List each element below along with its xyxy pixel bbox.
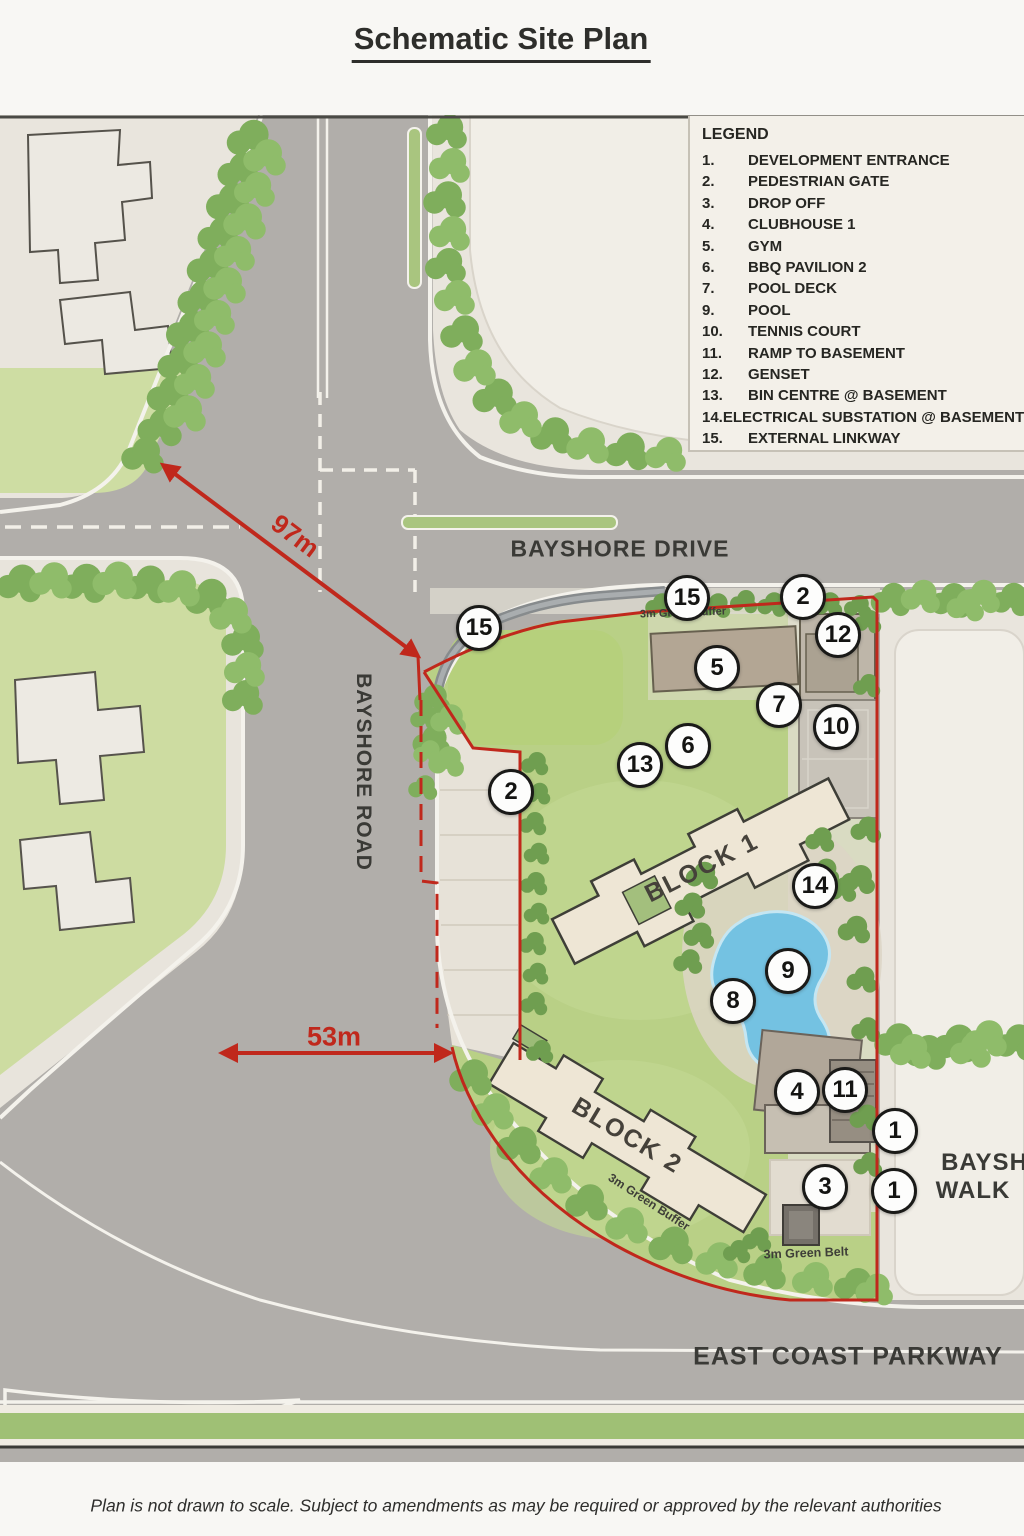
map-marker-4: 4 [774, 1069, 820, 1115]
map-marker-14: 14 [792, 863, 838, 909]
legend-title: LEGEND [702, 126, 1024, 144]
legend-item: 11.RAMP TO BASEMENT [702, 343, 1024, 364]
legend-item-number: 2. [702, 171, 748, 192]
legend-item-label: RAMP TO BASEMENT [748, 343, 905, 364]
map-marker-13: 13 [617, 742, 663, 788]
legend-item-label: CLUBHOUSE 1 [748, 214, 856, 235]
site-plan-page: Schematic Site Plan LEGEND 1.DEVELOPMENT… [0, 0, 1024, 1536]
page-title: Schematic Site Plan [352, 21, 651, 63]
map-marker-2: 2 [780, 574, 826, 620]
legend-item-label: EXTERNAL LINKWAY [748, 428, 901, 449]
road-label-bayshore-road: BAYSHORE ROAD [351, 673, 375, 871]
map-marker-2: 2 [488, 769, 534, 815]
legend-item: 14.ELECTRICAL SUBSTATION @ BASEMENT [702, 407, 1024, 428]
legend-item-number: 3. [702, 193, 748, 214]
road-label-east-coast-parkway: EAST COAST PARKWAY [693, 1343, 1003, 1372]
legend-item-label: ELECTRICAL SUBSTATION @ BASEMENT [723, 407, 1024, 428]
legend-item: 15.EXTERNAL LINKWAY [702, 428, 1024, 449]
legend-item-label: TENNIS COURT [748, 321, 861, 342]
legend-item: 5.GYM [702, 236, 1024, 257]
map-marker-1: 1 [871, 1168, 917, 1214]
legend-item-number: 15. [702, 428, 748, 449]
road-label-bayshore-walk-line1: BAYSHORE [941, 1149, 1024, 1177]
map-marker-3: 3 [802, 1164, 848, 1210]
legend-item-number: 9. [702, 300, 748, 321]
legend-item: 7.POOL DECK [702, 278, 1024, 299]
legend-item-label: GYM [748, 236, 782, 257]
legend-item-label: PEDESTRIAN GATE [748, 171, 889, 192]
legend-item: 12.GENSET [702, 364, 1024, 385]
green-buffer-label: 3m Green Belt [763, 1245, 848, 1262]
legend-item-label: DEVELOPMENT ENTRANCE [748, 150, 950, 171]
map-marker-6: 6 [665, 723, 711, 769]
legend-item: 13.BIN CENTRE @ BASEMENT [702, 385, 1024, 406]
legend-item-number: 13. [702, 385, 748, 406]
map-marker-9: 9 [765, 948, 811, 994]
legend-item: 4.CLUBHOUSE 1 [702, 214, 1024, 235]
map-marker-10: 10 [813, 704, 859, 750]
legend-item-number: 5. [702, 236, 748, 257]
legend-item: 2.PEDESTRIAN GATE [702, 171, 1024, 192]
dimension-53m-label: 53m [307, 1022, 361, 1053]
legend-item-label: BIN CENTRE @ BASEMENT [748, 385, 947, 406]
legend-item-number: 11. [702, 343, 748, 364]
legend-item-number: 4. [702, 214, 748, 235]
legend-item-label: POOL DECK [748, 278, 837, 299]
map-marker-7: 7 [756, 682, 802, 728]
map-marker-11: 11 [822, 1067, 868, 1113]
legend-item: 9.POOL [702, 300, 1024, 321]
legend-item-number: 1. [702, 150, 748, 171]
legend-item-number: 6. [702, 257, 748, 278]
legend-item-label: DROP OFF [748, 193, 825, 214]
legend-item: 6.BBQ PAVILION 2 [702, 257, 1024, 278]
legend-list: 1.DEVELOPMENT ENTRANCE2.PEDESTRIAN GATE3… [702, 150, 1024, 450]
legend-item-number: 12. [702, 364, 748, 385]
legend-item-number: 14. [702, 407, 723, 428]
map-marker-15: 15 [664, 575, 710, 621]
road-label-bayshore-walk-line2: WALK [936, 1177, 1011, 1205]
legend-item-label: GENSET [748, 364, 810, 385]
legend-panel: LEGEND 1.DEVELOPMENT ENTRANCE2.PEDESTRIA… [688, 116, 1024, 452]
road-label-bayshore-drive: BAYSHORE DRIVE [511, 536, 730, 563]
disclaimer-text: Plan is not drawn to scale. Subject to a… [90, 1496, 941, 1517]
map-marker-5: 5 [694, 645, 740, 691]
legend-item-label: BBQ PAVILION 2 [748, 257, 867, 278]
map-marker-12: 12 [815, 612, 861, 658]
map-marker-1: 1 [872, 1108, 918, 1154]
map-marker-8: 8 [710, 978, 756, 1024]
legend-item: 10.TENNIS COURT [702, 321, 1024, 342]
map-marker-15: 15 [456, 605, 502, 651]
legend-item: 1.DEVELOPMENT ENTRANCE [702, 150, 1024, 171]
legend-item: 3.DROP OFF [702, 193, 1024, 214]
legend-item-number: 10. [702, 321, 748, 342]
legend-item-number: 7. [702, 278, 748, 299]
legend-item-label: POOL [748, 300, 791, 321]
